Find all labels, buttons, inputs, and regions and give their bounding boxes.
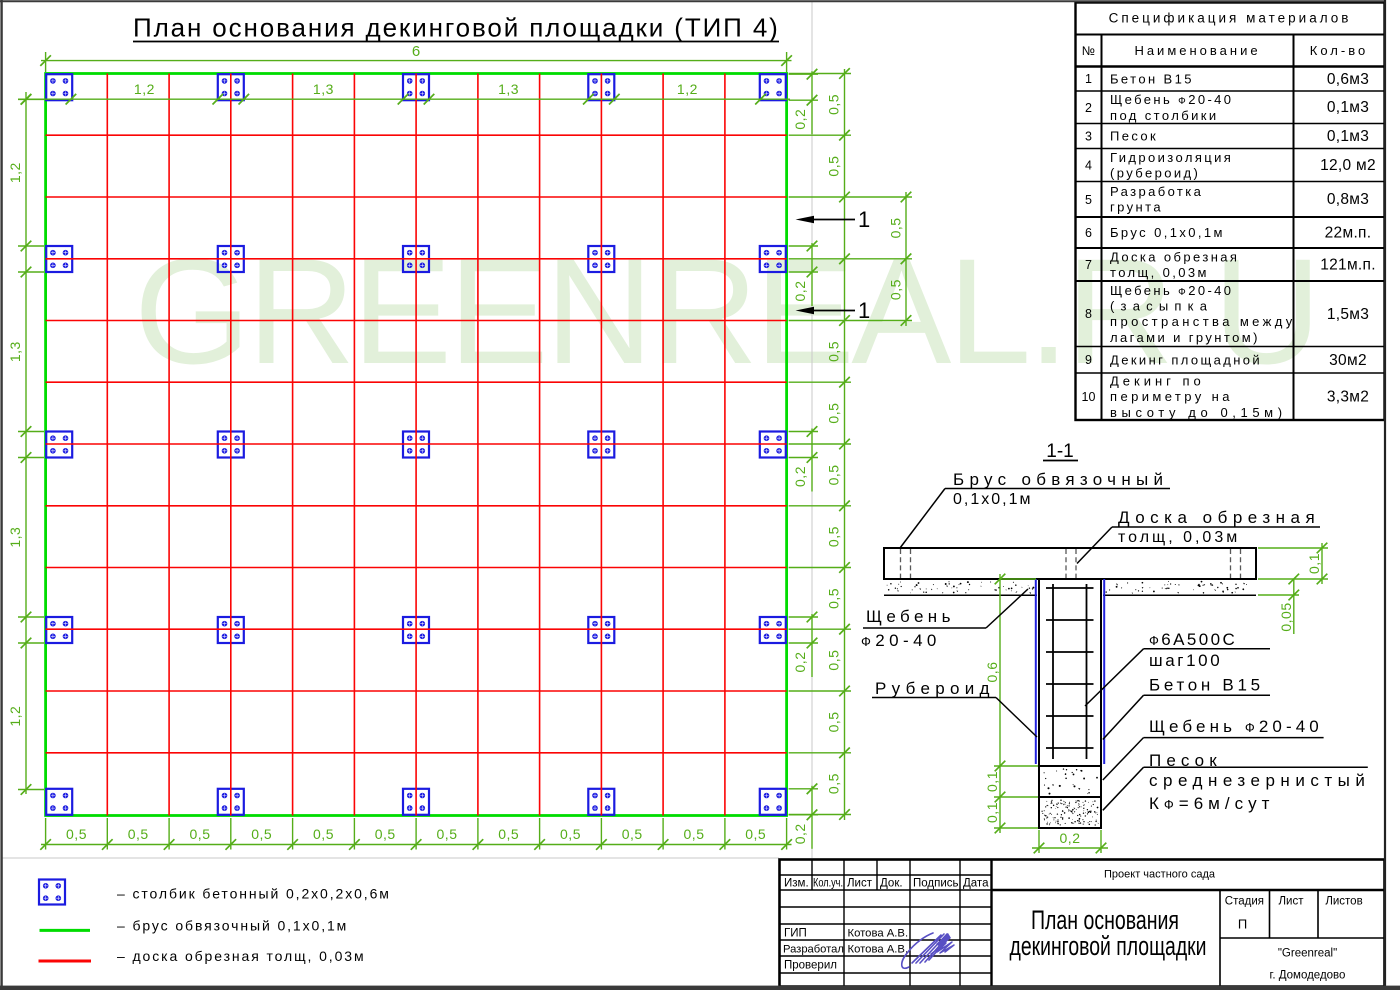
svg-text:под столбики: под столбики [1110, 108, 1218, 123]
svg-text:Декинг площадной: Декинг площадной [1110, 352, 1262, 367]
svg-text:Ф20-40: Ф20-40 [861, 631, 941, 650]
svg-text:0,5: 0,5 [128, 826, 149, 842]
svg-text:0,5: 0,5 [826, 650, 842, 671]
svg-text:0,2: 0,2 [1060, 830, 1081, 846]
svg-text:1,3: 1,3 [7, 341, 23, 362]
svg-text:0,05: 0,05 [1278, 602, 1294, 631]
svg-text:1,2: 1,2 [677, 81, 698, 97]
svg-text:Лист: Лист [1279, 896, 1305, 908]
svg-text:1,3: 1,3 [498, 81, 519, 97]
svg-text:Проект частного сада: Проект частного сада [1104, 869, 1216, 881]
svg-text:1: 1 [858, 298, 870, 323]
svg-text:0,5: 0,5 [66, 826, 87, 842]
svg-text:0,5: 0,5 [251, 826, 272, 842]
svg-text:0,5: 0,5 [826, 156, 842, 177]
svg-text:4: 4 [1085, 159, 1092, 173]
svg-text:толщ, 0,03м: толщ, 0,03м [1110, 265, 1209, 280]
svg-text:П: П [1238, 917, 1247, 932]
svg-text:0,8м3: 0,8м3 [1327, 191, 1369, 208]
svg-text:Брус обвязочный: Брус обвязочный [953, 470, 1168, 489]
svg-text:1,3: 1,3 [7, 527, 23, 548]
svg-text:Щебень Ф20-40: Щебень Ф20-40 [1149, 717, 1323, 736]
svg-text:План основания декинговой площ: План основания декинговой площадки (ТИП … [133, 13, 780, 43]
svg-text:КФ=6м/сут: КФ=6м/сут [1149, 794, 1274, 813]
svg-text:г. Домодедово: г. Домодедово [1270, 970, 1346, 982]
svg-text:0,5: 0,5 [498, 826, 519, 842]
svg-text:12,0 м2: 12,0 м2 [1320, 157, 1376, 174]
svg-text:0,5: 0,5 [313, 826, 334, 842]
svg-text:Подпись: Подпись [913, 878, 959, 890]
svg-text:– столбик бетонный 0,2х0,2х0,6: – столбик бетонный 0,2х0,2х0,6м [117, 886, 391, 902]
svg-text:0,5: 0,5 [826, 526, 842, 547]
svg-text:0,5: 0,5 [826, 588, 842, 609]
svg-text:2: 2 [1085, 101, 1092, 115]
svg-text:Листов: Листов [1325, 896, 1362, 908]
svg-text:(засыпка: (засыпка [1110, 299, 1213, 314]
svg-text:0,2: 0,2 [792, 466, 808, 487]
svg-text:0,5: 0,5 [826, 773, 842, 794]
svg-text:1,2: 1,2 [7, 706, 23, 727]
svg-text:1,2: 1,2 [134, 81, 155, 97]
svg-text:Доска обрезная: Доска обрезная [1118, 508, 1320, 527]
svg-text:Декинг по: Декинг по [1110, 374, 1205, 389]
svg-text:высоту до 0,15м): высоту до 0,15м) [1110, 405, 1287, 420]
svg-text:0,2: 0,2 [792, 109, 808, 130]
svg-text:0,5: 0,5 [684, 826, 705, 842]
svg-text:0,5: 0,5 [888, 217, 904, 238]
svg-text:ГИП: ГИП [784, 928, 807, 940]
svg-text:Изм.: Изм. [784, 878, 809, 890]
svg-text:Песок: Песок [1110, 129, 1158, 144]
svg-text:0,1х0,1м: 0,1х0,1м [953, 491, 1032, 508]
svg-text:Лист: Лист [847, 878, 873, 890]
svg-text:0,5: 0,5 [375, 826, 396, 842]
svg-text:0,1м3: 0,1м3 [1327, 99, 1369, 116]
svg-text:"Greenreal": "Greenreal" [1278, 948, 1337, 960]
svg-text:Наименование: Наименование [1134, 43, 1260, 58]
svg-text:декинговой площадки: декинговой площадки [1010, 931, 1207, 961]
svg-text:шаг100: шаг100 [1149, 651, 1222, 670]
svg-text:7: 7 [1085, 258, 1092, 272]
svg-text:9: 9 [1085, 353, 1092, 367]
svg-text:1,3: 1,3 [313, 81, 334, 97]
svg-text:Щебень Ф20-40: Щебень Ф20-40 [1110, 283, 1233, 298]
svg-text:Док.: Док. [880, 878, 903, 890]
svg-text:Бетон В15: Бетон В15 [1110, 72, 1194, 87]
svg-text:0,2: 0,2 [792, 281, 808, 302]
svg-text:0,2: 0,2 [792, 823, 808, 844]
svg-text:0,2: 0,2 [792, 652, 808, 673]
svg-text:8: 8 [1085, 307, 1092, 321]
svg-text:3: 3 [1085, 130, 1092, 144]
svg-text:Рубероид: Рубероид [875, 679, 995, 698]
svg-text:Брус 0,1х0,1м: Брус 0,1х0,1м [1110, 225, 1225, 240]
svg-text:0,5: 0,5 [745, 826, 766, 842]
svg-text:Бетон В15: Бетон В15 [1149, 676, 1264, 695]
svg-text:3,3м2: 3,3м2 [1327, 389, 1369, 406]
svg-text:Гидроизоляция: Гидроизоляция [1110, 150, 1233, 165]
svg-text:0,1: 0,1 [1306, 553, 1322, 574]
svg-text:0,5: 0,5 [888, 279, 904, 300]
svg-text:среднезернистый: среднезернистый [1149, 771, 1370, 790]
svg-text:0,5: 0,5 [437, 826, 458, 842]
svg-text:0,6м3: 0,6м3 [1327, 71, 1369, 88]
svg-text:Дата: Дата [963, 878, 989, 890]
svg-text:5: 5 [1085, 193, 1092, 207]
svg-text:Щебень Ф20-40: Щебень Ф20-40 [1110, 92, 1233, 107]
svg-text:0,1: 0,1 [984, 802, 1000, 823]
svg-text:– брус обвязочный 0,1х0,1м: – брус обвязочный 0,1х0,1м [117, 918, 348, 934]
svg-text:0,5: 0,5 [826, 711, 842, 732]
svg-text:Котова А.В.: Котова А.В. [848, 928, 909, 940]
svg-text:0,1м3: 0,1м3 [1327, 128, 1369, 145]
svg-text:грунта: грунта [1110, 200, 1163, 215]
svg-text:Ф6А500С: Ф6А500С [1149, 630, 1237, 649]
svg-text:Проверил: Проверил [784, 960, 837, 972]
svg-text:0,5: 0,5 [826, 403, 842, 424]
svg-text:1: 1 [858, 207, 870, 232]
svg-text:6: 6 [412, 43, 420, 60]
svg-text:1: 1 [1085, 72, 1092, 86]
svg-text:GREENREAL.R: GREENREAL.R [134, 227, 1171, 395]
svg-text:лагами и грунтом): лагами и грунтом) [1110, 330, 1260, 345]
svg-text:1-1: 1-1 [1046, 441, 1073, 462]
svg-text:№: № [1082, 44, 1095, 58]
svg-text:Стадия: Стадия [1225, 896, 1264, 908]
svg-text:Котова А.В.: Котова А.В. [848, 944, 909, 956]
svg-text:30м2: 30м2 [1329, 352, 1367, 369]
svg-text:10: 10 [1082, 390, 1096, 404]
svg-text:Щебень: Щебень [866, 607, 955, 626]
svg-text:Кол-во: Кол-во [1310, 43, 1368, 58]
svg-text:121м.п.: 121м.п. [1320, 257, 1376, 274]
svg-text:Кол.уч.: Кол.уч. [813, 878, 843, 890]
svg-text:0,5: 0,5 [826, 341, 842, 362]
svg-text:0,5: 0,5 [826, 94, 842, 115]
svg-text:1,2: 1,2 [7, 162, 23, 183]
svg-text:0,5: 0,5 [826, 464, 842, 485]
svg-text:Разработка: Разработка [1110, 184, 1203, 199]
svg-text:– доска обрезная толщ, 0,03м: – доска обрезная толщ, 0,03м [117, 948, 366, 964]
svg-text:0,1: 0,1 [984, 771, 1000, 792]
svg-text:1,5м3: 1,5м3 [1327, 306, 1369, 323]
svg-text:толщ, 0,03м: толщ, 0,03м [1118, 529, 1240, 546]
svg-text:пространства между: пространства между [1110, 314, 1296, 329]
svg-text:0,5: 0,5 [622, 826, 643, 842]
svg-text:(рубероид): (рубероид) [1110, 166, 1200, 181]
svg-text:0,5: 0,5 [190, 826, 211, 842]
svg-text:периметру на: периметру на [1110, 389, 1233, 404]
svg-text:Разработал: Разработал [783, 944, 844, 956]
svg-text:Доска обрезная: Доска обрезная [1110, 249, 1239, 264]
svg-text:22м.п.: 22м.п. [1325, 225, 1372, 242]
svg-text:Спецификация материалов: Спецификация материалов [1109, 11, 1352, 26]
svg-text:0,5: 0,5 [560, 826, 581, 842]
svg-text:6: 6 [1085, 226, 1092, 240]
